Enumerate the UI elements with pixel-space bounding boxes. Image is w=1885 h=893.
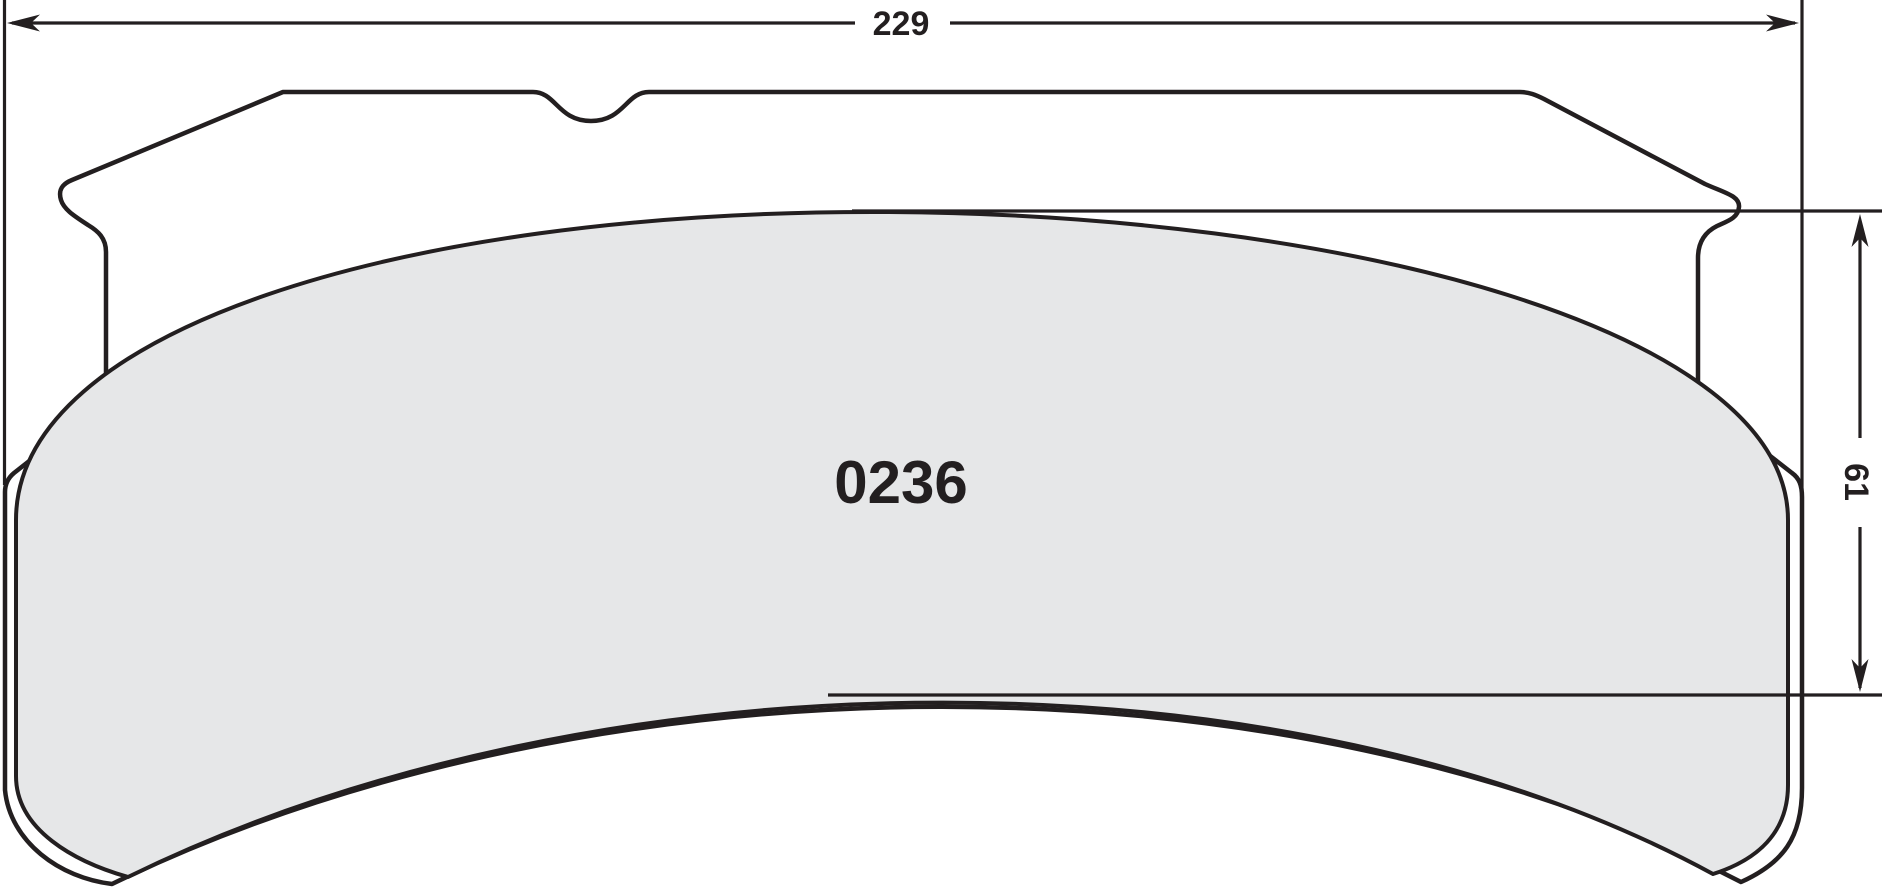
height-dimension-label: 61 [1837,463,1875,501]
part-number-label: 0236 [834,449,967,516]
friction-pad-shape [16,212,1788,877]
width-dimension-label: 229 [873,5,930,43]
brake-pad-drawing-svg: 229 61 0236 [0,0,1885,893]
technical-drawing-canvas: 229 61 0236 [0,0,1885,893]
